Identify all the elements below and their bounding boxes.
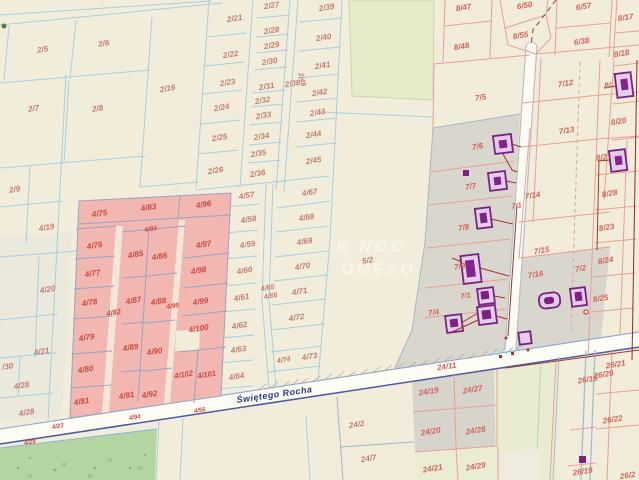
svg-text:CK: CK xyxy=(243,235,274,254)
svg-text:w: w xyxy=(28,474,33,480)
svg-text:7/7: 7/7 xyxy=(464,181,477,192)
svg-text:7/5: 7/5 xyxy=(474,92,487,103)
svg-text:7/2: 7/2 xyxy=(574,263,587,274)
svg-text:7/1: 7/1 xyxy=(511,200,523,211)
svg-text:7/8: 7/8 xyxy=(457,222,470,233)
svg-text:OMESO: OMESO xyxy=(341,261,416,278)
svg-text:7/9: 7/9 xyxy=(453,261,466,272)
svg-text:w: w xyxy=(138,466,143,472)
svg-text:w: w xyxy=(62,462,67,468)
svg-text:8/2: 8/2 xyxy=(595,152,608,163)
svg-text:7/6: 7/6 xyxy=(471,141,484,152)
svg-text:7/1: 7/1 xyxy=(460,290,472,301)
svg-text:w: w xyxy=(88,474,93,480)
svg-text:26/2: 26/2 xyxy=(618,470,636,480)
svg-text:SZ: SZ xyxy=(255,259,281,276)
svg-text:7/4: 7/4 xyxy=(427,307,440,318)
svg-text:K NOC: K NOC xyxy=(336,237,406,256)
svg-text:w: w xyxy=(108,458,113,464)
